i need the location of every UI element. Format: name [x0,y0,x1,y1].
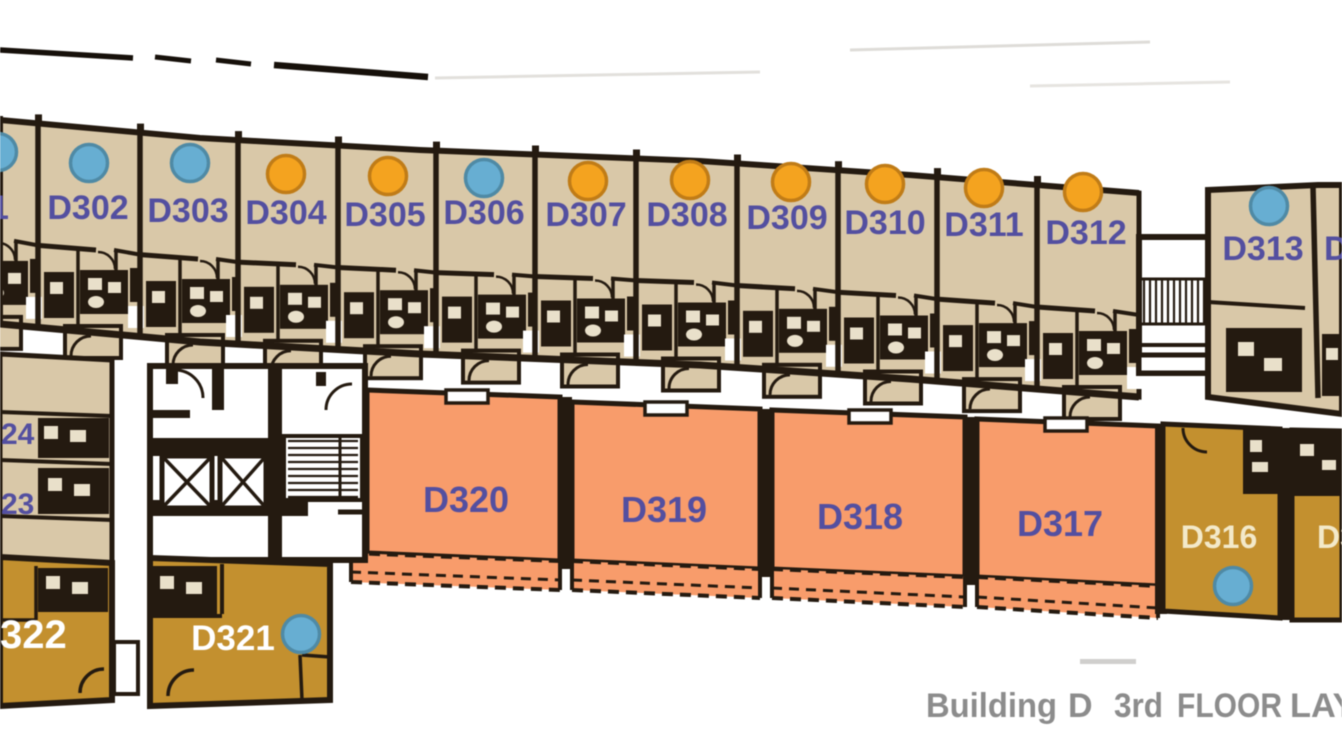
svg-text:23: 23 [1,488,34,521]
svg-text:D319: D319 [621,489,707,530]
svg-text:D313: D313 [1222,230,1303,268]
svg-text:01: 01 [0,189,9,227]
svg-text:D303: D303 [147,192,228,230]
svg-text:D312: D312 [1045,214,1126,252]
svg-text:24: 24 [1,418,35,451]
svg-text:D321: D321 [191,619,275,658]
svg-text:D304: D304 [245,194,326,232]
svg-text:D307: D307 [545,196,626,234]
svg-text:D317: D317 [1017,503,1103,544]
svg-text:D320: D320 [423,479,509,520]
svg-text:D311: D311 [944,206,1023,244]
svg-text:D306: D306 [443,194,524,232]
svg-text:D316: D316 [1181,519,1258,555]
svg-text:D305: D305 [344,196,425,234]
svg-text:3rd: 3rd [1114,687,1163,725]
svg-text:D3: D3 [1324,230,1342,268]
svg-text:D309: D309 [746,199,827,237]
svg-text:D302: D302 [47,189,128,227]
svg-text:D308: D308 [646,196,727,234]
svg-text:FLOOR: FLOOR [1177,687,1282,725]
svg-text:LAYOUT: LAYOUT [1290,687,1342,725]
svg-text:Building: Building [926,687,1057,725]
svg-text:D318: D318 [817,496,903,537]
svg-text:D310: D310 [844,204,925,242]
svg-text:D3: D3 [1317,519,1342,555]
svg-text:322: 322 [0,613,67,657]
svg-text:D: D [1068,687,1093,725]
